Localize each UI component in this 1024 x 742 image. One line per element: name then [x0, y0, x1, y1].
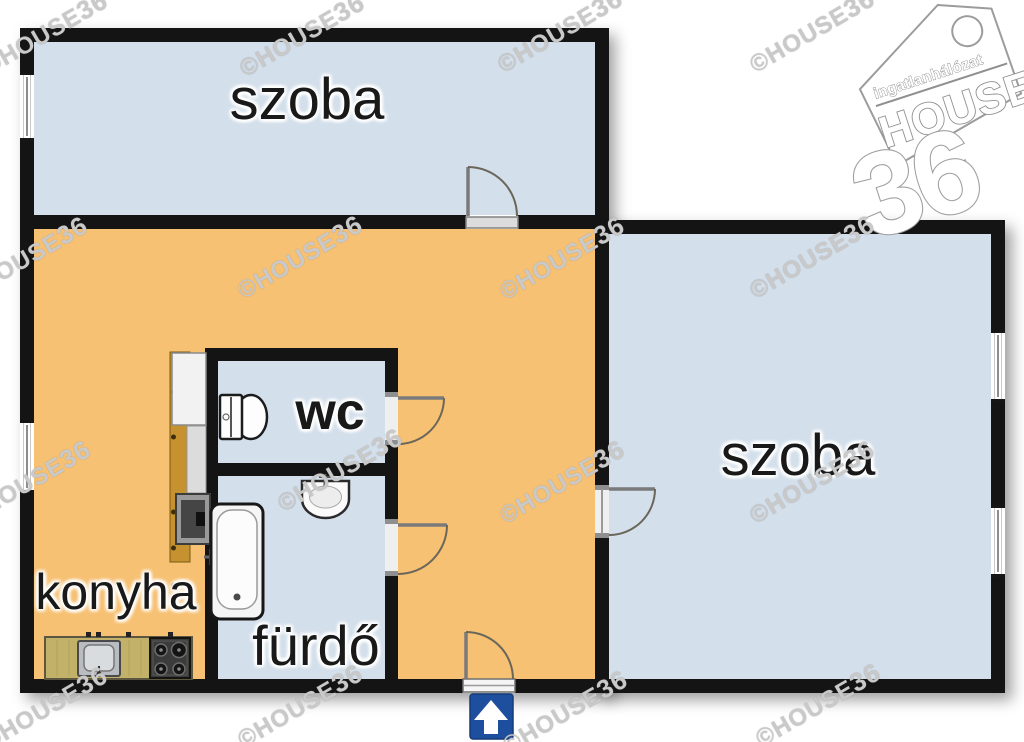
wall	[205, 348, 398, 361]
logo-network-text: ingatlanhálózat	[872, 51, 985, 102]
window-kitchen	[20, 420, 34, 493]
label-kitchen: konyha	[35, 567, 196, 617]
label-room-right: szoba	[721, 427, 876, 485]
label-wc: wc	[295, 386, 364, 438]
wall	[991, 571, 1005, 693]
wall	[20, 28, 608, 42]
wall	[205, 463, 398, 476]
wall	[20, 215, 466, 229]
window-right-room-2	[991, 505, 1005, 577]
logo-house-text: HOUSE	[873, 61, 1024, 158]
entrance-sign	[470, 694, 513, 739]
wall	[991, 220, 1005, 330]
wall	[385, 575, 398, 679]
wall	[20, 28, 34, 72]
window-right-room-1	[991, 330, 1005, 402]
wall	[385, 348, 398, 396]
wall	[20, 679, 463, 693]
label-room-top: szoba	[230, 71, 385, 129]
wall	[991, 396, 1005, 505]
wall	[20, 487, 34, 693]
wall	[205, 348, 218, 679]
wall	[20, 135, 34, 420]
window-top-room	[20, 72, 34, 141]
wall	[595, 220, 1005, 234]
label-bathroom: fürdő	[252, 618, 380, 674]
watermark-text: ©HOUSE36	[744, 0, 881, 79]
floor-plan: ingatlanhálózat HOUSE 36 szoba szoba kon…	[0, 0, 1024, 742]
entrance-arrow-icon	[474, 700, 508, 734]
wall	[595, 537, 609, 693]
wall	[515, 679, 1005, 693]
wall	[385, 444, 398, 521]
wall	[595, 28, 609, 487]
